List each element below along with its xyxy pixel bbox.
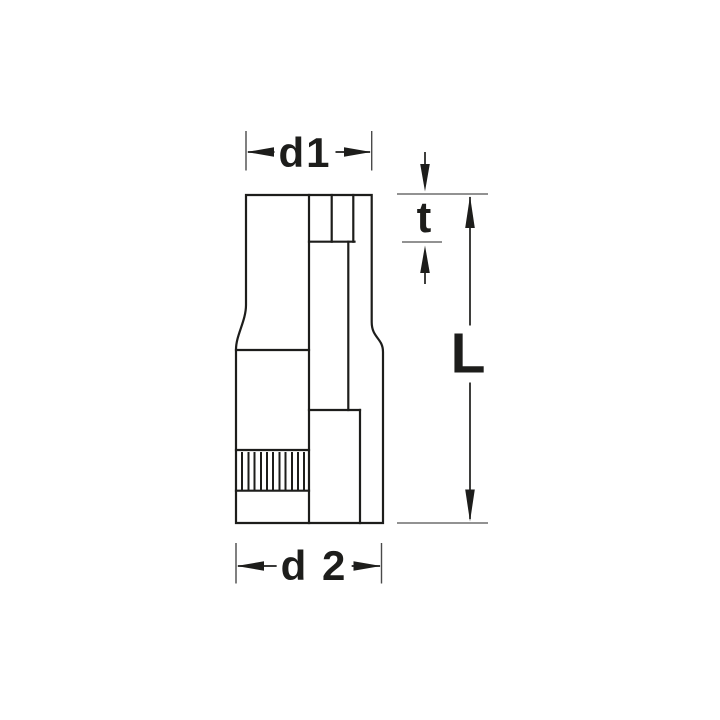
l-bottom-arrowhead xyxy=(465,490,475,522)
l-dimension-label: L xyxy=(447,326,490,383)
l-top-arrowhead xyxy=(465,196,475,228)
socket-dimension-diagram: d1 t L d 2 xyxy=(0,0,720,720)
t-down-arrowhead xyxy=(420,164,430,192)
t-dimension-label: t xyxy=(413,196,436,240)
drawing-svg xyxy=(0,0,720,720)
d2-left-arrowhead xyxy=(237,561,265,570)
d1-left-arrowhead xyxy=(247,147,275,156)
d1-right-arrowhead xyxy=(344,147,371,156)
d1-dimension-label: d1 xyxy=(274,132,335,174)
t-up-arrowhead xyxy=(420,246,430,274)
knurl-hatching xyxy=(237,452,308,491)
arrowheads-group xyxy=(237,147,475,570)
d2-dimension-label: d 2 xyxy=(277,545,352,587)
d2-right-arrowhead xyxy=(354,561,382,570)
